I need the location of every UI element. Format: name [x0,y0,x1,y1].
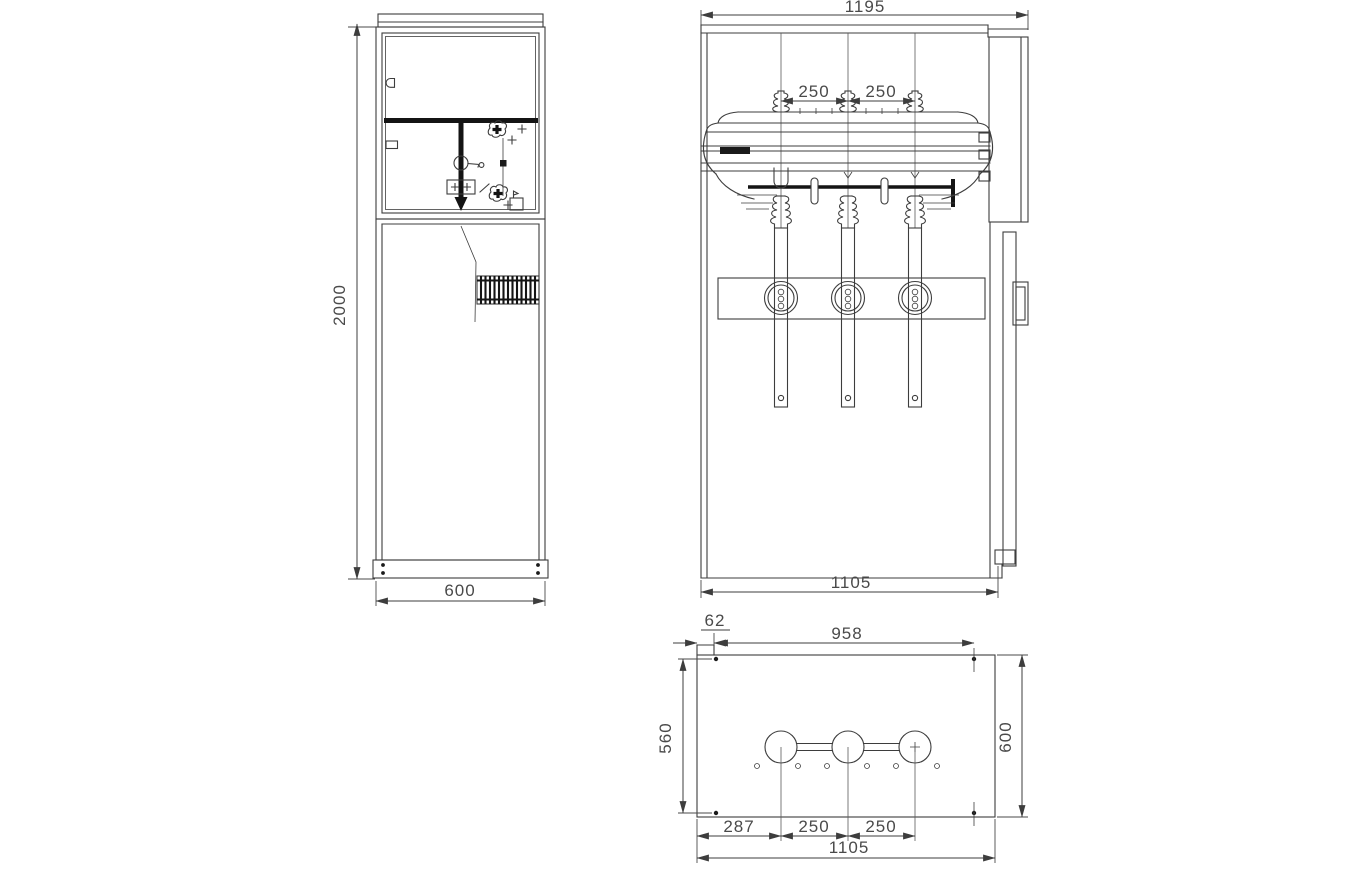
dim-plan-overall-width-label: 1105 [829,838,870,857]
cable-clamp [765,282,798,315]
plus-mark [518,125,526,133]
interlock-chain [480,121,526,210]
dim-front-overall-width-label: 1195 [845,0,886,16]
vent-leader-line [461,226,476,322]
tank-nameplate [720,147,750,154]
plan-view: 62 958 560 600 [656,611,1028,863]
keyhole-icon [386,79,394,88]
plan-edge-offset-dimension: 62 [673,611,738,645]
dim-plan-pitch-right-label: 250 [865,817,896,836]
cable-bar [909,228,922,407]
padlock-icon-top [488,121,506,138]
cable-termination [718,228,985,407]
gas-tank [701,91,993,228]
door-handle[interactable] [1013,282,1028,325]
feeder-arrow [455,197,468,211]
side-view-lower-compartment [376,219,545,560]
front-view: 1195 [701,0,1028,598]
cable-clamp [899,282,932,315]
fixing-holes [714,648,976,826]
cable-bar [775,228,788,407]
plus-mark [504,201,512,209]
padlock-icon-bottom [489,185,507,202]
tank-roller-right [881,178,888,204]
clamp-rail [718,278,985,319]
cable-gland-cutouts [755,731,940,841]
side-view-top-cap [378,14,543,27]
dim-side-width-label: 600 [444,581,475,600]
dim-plan-hole-span-label: 958 [831,624,862,643]
plan-hole-depth-dimension: 560 [656,659,712,813]
cable-clamp [832,282,865,315]
phase-centre-lines [781,33,919,228]
dim-plan-pitch-left-label: 250 [798,817,829,836]
plan-hole-span-dimension: 958 [716,624,974,643]
ventilation-grille [477,276,539,304]
plan-pitch-dimensions: 287 250 250 [697,817,915,863]
switch-symbol [454,156,484,170]
dim-plan-depth-label: 600 [996,721,1015,752]
plan-depth-dimension: 600 [996,655,1028,817]
door-mimic-diagram [384,79,538,212]
label-plate-icon [386,141,398,149]
side-view: 2000 [330,14,548,606]
dim-side-height-label: 2000 [330,284,349,326]
dim-front-base-width-label: 1105 [831,573,872,592]
front-view-side-box [979,37,1028,566]
side-view-height-dimension: 2000 [330,24,379,579]
dim-front-phase-right-label: 250 [865,82,896,101]
dim-plan-hole-depth-label: 560 [656,722,675,753]
front-view-base-width-dimension: 1105 [701,566,998,598]
side-view-width-dimension: 600 [376,581,545,606]
cable-bar [842,228,855,407]
tank-roller-left [811,178,818,204]
drawing-canvas: 2000 [0,0,1370,891]
dim-front-phase-left-label: 250 [798,82,829,101]
plus-mark [508,136,516,144]
dim-plan-edge-offset-label: 62 [705,611,726,630]
flagged-box-icon [510,191,523,210]
side-view-base [373,560,548,578]
dim-plan-first-pitch-label: 287 [723,817,754,836]
